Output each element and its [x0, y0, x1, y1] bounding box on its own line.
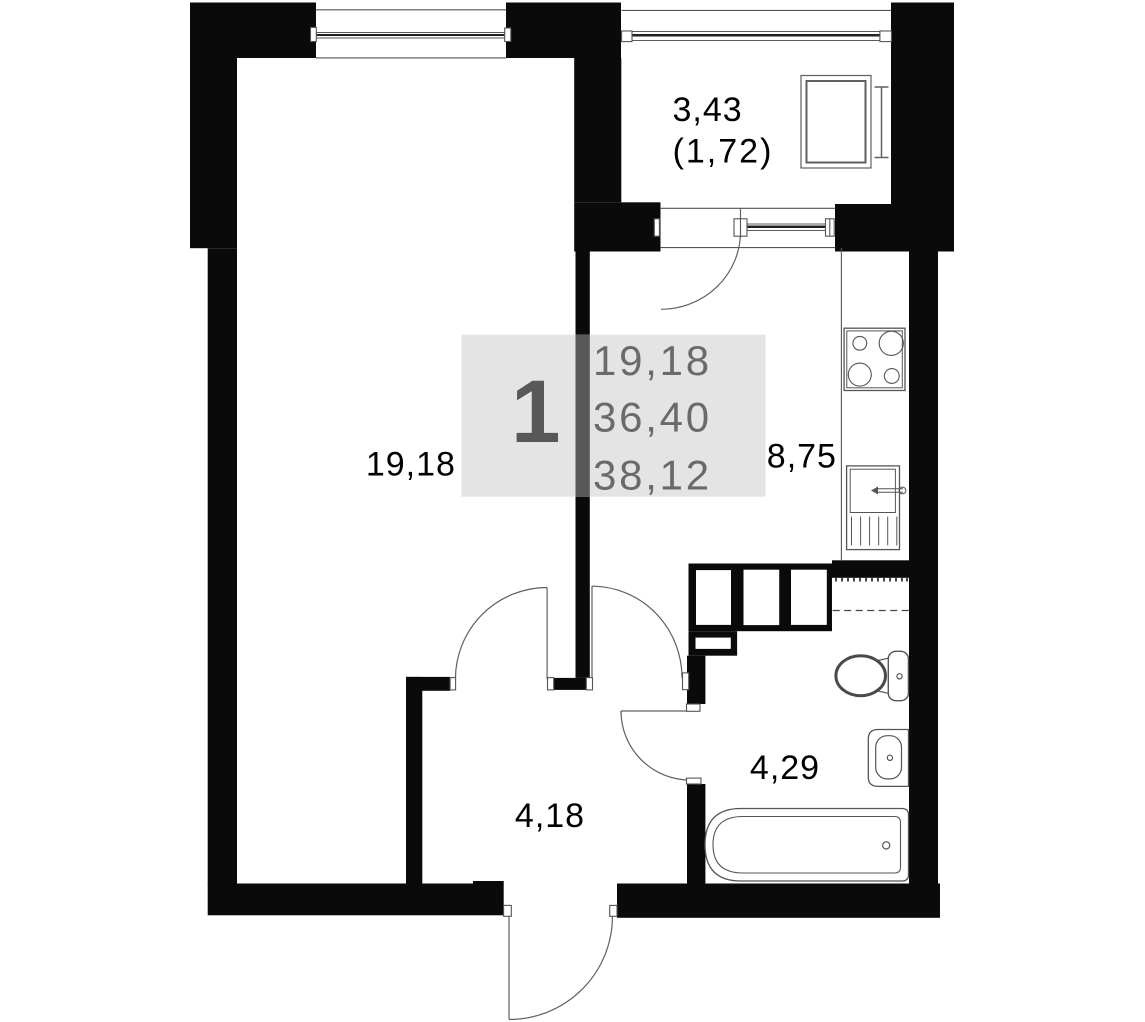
svg-text:36,40: 36,40	[593, 394, 712, 441]
svg-text:1: 1	[511, 361, 561, 461]
svg-text:38,12: 38,12	[593, 452, 712, 499]
svg-text:(1,72): (1,72)	[673, 132, 774, 170]
svg-text:4,29: 4,29	[750, 749, 820, 787]
svg-text:8,75: 8,75	[767, 438, 837, 476]
svg-text:4,18: 4,18	[515, 797, 585, 835]
svg-text:19,18: 19,18	[366, 446, 456, 484]
svg-text:19,18: 19,18	[593, 337, 712, 384]
svg-text:3,43: 3,43	[673, 91, 743, 129]
